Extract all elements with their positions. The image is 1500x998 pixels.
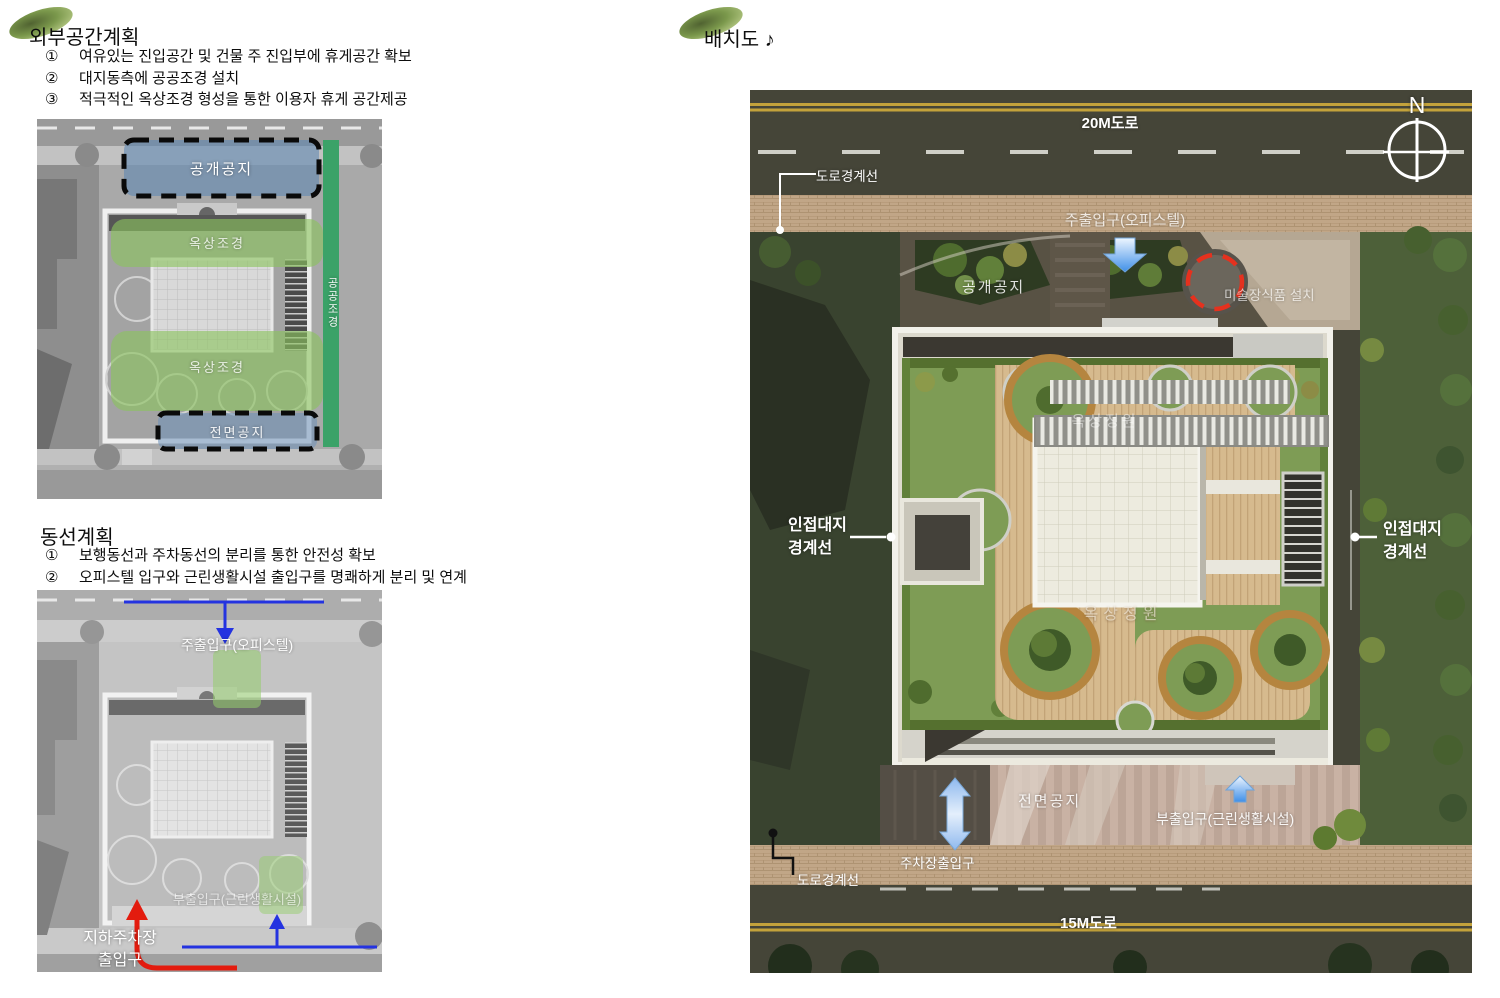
adjacent-boundary-right-label: 인접대지 경계선 xyxy=(1383,518,1442,564)
item-text: 오피스텔 입구와 근린생활시설 출입구를 명쾌하게 분리 및 연계 xyxy=(79,567,467,589)
plan2-underground-parking-label: 지하주차장 출입구 xyxy=(55,928,185,972)
sub-entrance-label: 부출입구(근린생활시설) xyxy=(1156,809,1294,829)
list-item: ② 오피스텔 입구와 근린생활시설 출입구를 명쾌하게 분리 및 연계 xyxy=(45,567,467,589)
site-plan-title: 배치도 ♪ xyxy=(704,23,775,52)
plan1-exterior-space: 공개공지 옥상조경 옥상조경 공공조경 전면공지 xyxy=(37,119,382,499)
section1-list: ① 여유있는 진입공간 및 건물 주 진입부에 휴게공간 확보 ② 대지동측에 … xyxy=(45,46,412,111)
item-number: ② xyxy=(45,68,79,90)
adjacent-boundary-left-label: 인접대지 경계선 xyxy=(788,514,847,560)
plan1-roof-landscape-top-label: 옥상조경 xyxy=(113,233,321,252)
item-text: 여유있는 진입공간 및 건물 주 진입부에 휴게공간 확보 xyxy=(79,46,412,68)
item-number: ① xyxy=(45,46,79,68)
site-plan-main: 20M도로 N 도로경계선 주출입구(오피스텔) 공개공지 미술장식품 설치 인… xyxy=(750,90,1472,973)
plan1-public-landscape-label: 공공조경 xyxy=(324,277,340,329)
art-feature-label: 미술장식품 설치 xyxy=(1224,284,1315,304)
road-boundary-top-label: 도로경계선 xyxy=(816,165,878,185)
slide-page: 외부공간계획 ① 여유있는 진입공간 및 건물 주 진입부에 휴게공간 확보 ②… xyxy=(0,0,1500,998)
open-space-label: 공개공지 xyxy=(962,276,1025,297)
item-text: 적극적인 옥상조경 형성을 통한 이용자 휴게 공간제공 xyxy=(79,89,408,111)
road-15m-label: 15M도로 xyxy=(1060,912,1117,933)
item-number: ① xyxy=(45,545,79,567)
section2-list: ① 보행동선과 주차동선의 분리를 통한 안전성 확보 ② 오피스텔 입구와 근… xyxy=(45,545,467,588)
compass-north-label: N xyxy=(1402,92,1432,119)
list-item: ③ 적극적인 옥상조경 형성을 통한 이용자 휴게 공간제공 xyxy=(45,89,412,111)
list-item: ① 여유있는 진입공간 및 건물 주 진입부에 휴게공간 확보 xyxy=(45,46,412,68)
building-roof-garden xyxy=(895,330,1330,765)
roof-garden-bottom-label: 옥상정원 xyxy=(1058,600,1188,624)
item-number: ③ xyxy=(45,89,79,111)
item-number: ② xyxy=(45,567,79,589)
plan2-sub-entrance-label: 부출입구(근린생활시설) xyxy=(127,889,347,908)
plan1-front-space-label: 전면공지 xyxy=(158,422,317,441)
parking-entrance-label: 주차장출입구 xyxy=(900,852,975,872)
plan1-roof-landscape-bottom-label: 옥상조경 xyxy=(113,357,321,376)
plan2-main-entrance-label: 주출입구(오피스텔) xyxy=(132,635,342,655)
road-boundary-bottom-label: 도로경계선 xyxy=(797,869,859,889)
item-text: 대지동측에 공공조경 설치 xyxy=(79,68,239,90)
list-item: ② 대지동측에 공공조경 설치 xyxy=(45,68,412,90)
main-entrance-label: 주출입구(오피스텔) xyxy=(1040,209,1210,230)
plan1-open-space-label: 공개공지 xyxy=(124,158,319,179)
road-20m-label: 20M도로 xyxy=(1050,112,1170,133)
item-text: 보행동선과 주차동선의 분리를 통한 안전성 확보 xyxy=(79,545,376,567)
front-space-label: 전면공지 xyxy=(1018,790,1081,811)
roof-garden-top-label: 옥상정원 xyxy=(1045,410,1165,431)
list-item: ① 보행동선과 주차동선의 분리를 통한 안전성 확보 xyxy=(45,545,467,567)
plan2-circulation: 주출입구(오피스텔) 부출입구(근린생활시설) 지하주차장 출입구 xyxy=(37,590,382,972)
